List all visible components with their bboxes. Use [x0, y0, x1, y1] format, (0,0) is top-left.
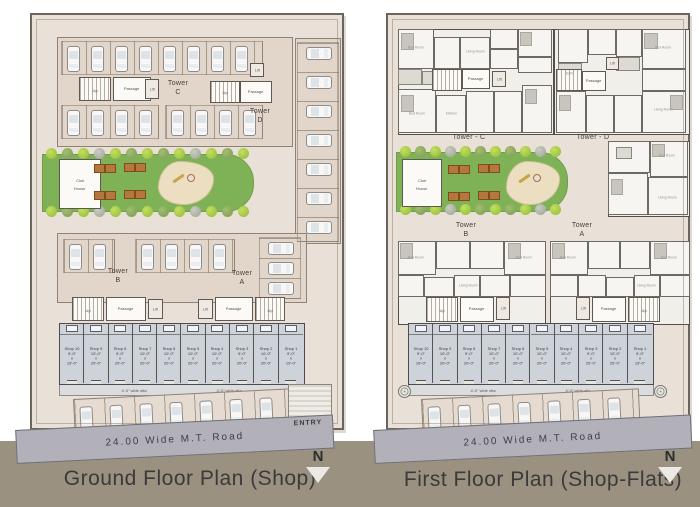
passage-lobby: [582, 71, 606, 91]
bench: [124, 163, 146, 172]
ground-floor-plan-sheet: UpPassageLiftTowerCUpPassageLiftTowerDCl…: [30, 13, 344, 430]
room: [620, 241, 650, 269]
bathroom: [398, 69, 422, 85]
furniture: [520, 32, 532, 46]
tree-top-icon: [654, 385, 667, 398]
tree: [400, 146, 411, 157]
tree: [158, 148, 169, 159]
shop-stall: Shop 410'-0"x20'-0": [555, 324, 579, 383]
tree: [94, 148, 105, 159]
room: [510, 275, 546, 297]
shops-block: Shop 109'-0"x19'-0"Shop 910'-0"x20'-0"Sh…: [408, 323, 654, 385]
lift: Lift: [145, 79, 159, 99]
tree: [46, 148, 57, 159]
tower-label: Tower: [564, 221, 600, 230]
room: [586, 95, 614, 133]
room: [578, 275, 606, 297]
tree: [535, 146, 546, 157]
room: [518, 57, 552, 73]
tree: [490, 146, 501, 157]
shop-stall: Shop 610'-0"x20'-0": [506, 324, 530, 383]
first-floor-plan-title: First Floor Plan (Shop-Flats): [398, 468, 688, 492]
staircase: [432, 69, 462, 91]
lift: Lift: [496, 297, 510, 320]
shop-label: Shop 910'-0"x20'-0": [433, 347, 456, 366]
shop-label: Shop 39'-0"x20'-0": [230, 347, 253, 366]
lift: Lift: [198, 299, 213, 319]
shop-stall: Shop 510'-0"x20'-0": [182, 324, 206, 383]
furniture: [400, 243, 413, 259]
staircase: [79, 77, 111, 101]
room: [648, 177, 688, 215]
lift: Lift: [148, 299, 163, 319]
floor-plan-brochure: UpPassageLiftTowerCUpPassageLiftTowerDCl…: [0, 0, 700, 507]
wc-box: [536, 325, 548, 332]
bench: [478, 191, 500, 200]
room: [490, 29, 518, 49]
car: [306, 105, 332, 118]
tree: [78, 148, 89, 159]
tree: [505, 146, 516, 157]
shop-stall: Shop 710'-0"x20'-0": [133, 324, 157, 383]
shop-label: Shop 19'-0"x19'-0": [279, 347, 302, 366]
wc-box: [560, 325, 572, 332]
bench: [448, 165, 470, 174]
room: [550, 275, 578, 297]
room: [466, 91, 494, 133]
shop-label: Shop 210'-0"x20'-0": [255, 347, 278, 366]
north-compass-left: N: [303, 448, 333, 483]
shop-stall: Shop 210'-0"x20'-0": [254, 324, 278, 383]
wc-box: [512, 325, 524, 332]
parking-row: [135, 239, 235, 273]
car: [163, 46, 176, 72]
car: [67, 46, 80, 72]
shop-label: Shop 89'-0"x20'-0": [458, 347, 481, 366]
wc-box: [66, 325, 78, 332]
passage-lobby: [240, 81, 272, 103]
room: [398, 275, 424, 297]
shop-label: Shop 210'-0"x20'-0": [604, 347, 627, 366]
parking-row: [259, 237, 301, 299]
room: [494, 91, 522, 133]
shop-label: Shop 109'-0"x19'-0": [60, 347, 83, 366]
shop-label: Shop 39'-0"x20'-0": [579, 347, 602, 366]
car: [189, 244, 202, 270]
room: [558, 29, 588, 63]
car: [165, 244, 178, 270]
room: [642, 69, 686, 91]
bathroom: [616, 57, 640, 71]
shop-label: Shop 610'-0"x20'-0": [506, 347, 529, 366]
tree: [415, 146, 426, 157]
shop-label: Shop 410'-0"x20'-0": [555, 347, 578, 366]
road-label: 24.00 Wide M.T. Road: [105, 430, 244, 448]
car: [235, 46, 248, 72]
shop-stall: Shop 109'-0"x19'-0": [60, 324, 84, 383]
tower-label: B: [448, 230, 484, 239]
staircase: [426, 297, 458, 322]
car: [306, 134, 332, 147]
shop-label: Shop 910'-0"x20'-0": [84, 347, 107, 366]
wc-box: [211, 325, 223, 332]
shops-block: Shop 109'-0"x19'-0"Shop 910'-0"x20'-0"Sh…: [59, 323, 305, 385]
tree: [520, 204, 531, 215]
lift: Lift: [576, 297, 590, 320]
room: [606, 277, 634, 297]
wc-box: [415, 325, 427, 332]
tree: [238, 148, 249, 159]
tree: [550, 146, 561, 157]
shop-stall: Shop 210'-0"x20'-0": [603, 324, 627, 383]
tree: [126, 206, 137, 217]
tree: [174, 206, 185, 217]
car: [139, 46, 152, 72]
bench: [94, 164, 116, 173]
tree: [62, 148, 73, 159]
parking-row: [297, 42, 339, 242]
shop-label: Shop 510'-0"x20'-0": [182, 347, 205, 366]
shop-label: Shop 109'-0"x19'-0": [409, 347, 432, 366]
room: [434, 37, 460, 69]
shop-stall: Shop 910'-0"x20'-0": [84, 324, 108, 383]
lift: Lift: [606, 57, 619, 70]
north-compass-right: N: [655, 448, 685, 483]
shop-label: Shop 510'-0"x20'-0": [531, 347, 554, 366]
tree: [475, 204, 486, 215]
staircase: [255, 297, 285, 321]
wc-box: [163, 325, 175, 332]
tree: [222, 206, 233, 217]
staircase: [210, 81, 240, 103]
tree: [550, 204, 561, 215]
parking-row: [61, 41, 263, 75]
car: [93, 244, 106, 270]
car: [211, 46, 224, 72]
car: [141, 244, 154, 270]
tree: [505, 204, 516, 215]
shop-stall: Shop 89'-0"x20'-0": [109, 324, 133, 383]
car: [171, 110, 184, 136]
car: [115, 110, 128, 136]
car: [69, 244, 82, 270]
north-label: N: [303, 448, 333, 465]
parking-row: [61, 105, 159, 139]
tree-top-icon: [398, 385, 411, 398]
car: [306, 47, 332, 60]
furniture: [552, 243, 565, 259]
wc-box: [187, 325, 199, 332]
tree: [490, 204, 501, 215]
play-equipment-icon: [187, 174, 195, 182]
furniture: [670, 95, 683, 110]
bench: [478, 164, 500, 173]
shop-label: Shop 710'-0"x20'-0": [133, 347, 156, 366]
tree: [222, 148, 233, 159]
furniture: [611, 179, 623, 195]
tree: [535, 204, 546, 215]
tree: [46, 206, 57, 217]
car: [91, 110, 104, 136]
shop-label: Shop 19'-0"x19'-0": [628, 347, 651, 366]
staircase: [72, 297, 104, 321]
room: [460, 37, 490, 69]
wc-box: [236, 325, 248, 332]
tree: [206, 148, 217, 159]
wc-box: [463, 325, 475, 332]
parking-row: [63, 239, 115, 273]
furniture: [559, 95, 571, 111]
furniture: [508, 243, 521, 259]
bench: [448, 192, 470, 201]
car: [268, 262, 294, 275]
room: [588, 241, 620, 269]
car: [306, 192, 332, 205]
furniture: [652, 144, 665, 157]
passage-lobby: [460, 297, 494, 322]
tree: [460, 146, 471, 157]
tree: [460, 204, 471, 215]
lift: Lift: [492, 71, 506, 87]
shop-stall: Shop 610'-0"x20'-0": [157, 324, 181, 383]
room: [424, 277, 454, 297]
furniture: [401, 95, 414, 112]
shop-stall: Shop 39'-0"x20'-0": [230, 324, 254, 383]
wc-box: [90, 325, 102, 332]
room: [436, 95, 466, 133]
shop-label: Shop 410'-0"x20'-0": [206, 347, 229, 366]
passage-lobby: [215, 297, 253, 321]
shop-label: Shop 710'-0"x20'-0": [482, 347, 505, 366]
wc-box: [609, 325, 621, 332]
bench: [124, 190, 146, 199]
tree: [445, 204, 456, 215]
staircase: [556, 69, 582, 91]
room: [616, 29, 642, 57]
tower-label: Tower: [448, 221, 484, 230]
shop-stall: Shop 410'-0"x20'-0": [206, 324, 230, 383]
tree: [190, 148, 201, 159]
tree: [142, 206, 153, 217]
shop-stall: Shop 39'-0"x20'-0": [579, 324, 603, 383]
tower-label: A: [564, 230, 600, 239]
car: [67, 110, 80, 136]
wc-box: [260, 325, 272, 332]
furniture: [401, 33, 414, 50]
tree: [126, 148, 137, 159]
car: [243, 110, 256, 136]
room: [454, 275, 480, 297]
tree: [238, 206, 249, 217]
room: [588, 29, 616, 55]
car: [115, 46, 128, 72]
wc-box: [139, 325, 151, 332]
tree: [475, 146, 486, 157]
play-equipment-icon: [533, 174, 541, 182]
car: [187, 46, 200, 72]
staircase: [628, 297, 660, 322]
room: [660, 275, 690, 297]
wc-box: [634, 325, 646, 332]
shop-label: Shop 610'-0"x20'-0": [157, 347, 180, 366]
car: [306, 221, 332, 234]
furniture: [525, 89, 537, 104]
ground-floor-plan-title: Ground Floor Plan (Shop): [55, 467, 325, 491]
tree: [445, 146, 456, 157]
wc-box: [488, 325, 500, 332]
shop-stall: Shop 109'-0"x19'-0": [409, 324, 433, 383]
tree: [520, 146, 531, 157]
bench: [94, 191, 116, 200]
car: [91, 46, 104, 72]
car: [268, 242, 294, 255]
wc-box: [585, 325, 597, 332]
shop-stall: Shop 19'-0"x19'-0": [279, 324, 303, 383]
car: [306, 163, 332, 176]
wc-box: [285, 325, 297, 332]
shop-stall: Shop 89'-0"x20'-0": [458, 324, 482, 383]
entry-label: ENTRY: [294, 419, 323, 427]
shop-label: Shop 89'-0"x20'-0": [109, 347, 132, 366]
room: [470, 241, 504, 269]
room: [614, 95, 642, 133]
north-label: N: [655, 448, 685, 465]
car: [306, 76, 332, 89]
car: [268, 282, 294, 295]
car: [219, 110, 232, 136]
car: [213, 244, 226, 270]
room: [480, 275, 510, 297]
parking-row: [165, 105, 263, 139]
road-label: 24.00 Wide M.T. Road: [463, 430, 602, 448]
furniture: [644, 33, 658, 49]
tree: [142, 148, 153, 159]
wc-box: [114, 325, 126, 332]
room: [490, 49, 518, 69]
tree: [174, 148, 185, 159]
passage-lobby: [106, 297, 146, 321]
tree: [158, 206, 169, 217]
lift: Lift: [250, 63, 264, 77]
shop-stall: Shop 710'-0"x20'-0": [482, 324, 506, 383]
wc-box: [439, 325, 451, 332]
shop-stall: Shop 19'-0"x19'-0": [628, 324, 652, 383]
tree: [110, 148, 121, 159]
club-house: [402, 159, 442, 207]
passage-lobby: [462, 69, 490, 89]
shop-stall: Shop 910'-0"x20'-0": [433, 324, 457, 383]
bathroom: [616, 147, 632, 159]
shop-stall: Shop 510'-0"x20'-0": [531, 324, 555, 383]
car: [139, 110, 152, 136]
first-floor-plan-sheet: Tower - CTower - DClubHouseTowerBTowerAS…: [386, 13, 690, 430]
room: [634, 275, 660, 297]
tree: [110, 206, 121, 217]
furniture: [654, 243, 667, 259]
car: [195, 110, 208, 136]
passage-lobby: [592, 297, 626, 322]
tree: [190, 206, 201, 217]
tree: [206, 206, 217, 217]
room: [436, 241, 470, 269]
tree: [430, 146, 441, 157]
